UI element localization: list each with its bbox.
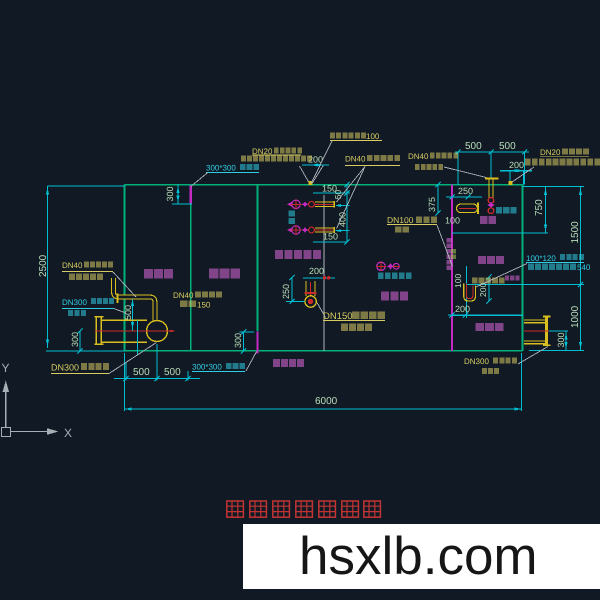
svg-text:50: 50 <box>333 190 343 200</box>
svg-text:DN300: DN300 <box>464 357 489 366</box>
svg-text:Y: Y <box>2 361 10 375</box>
svg-text:200: 200 <box>309 266 324 276</box>
svg-text:300: 300 <box>70 332 80 347</box>
svg-text:DN40: DN40 <box>62 261 83 270</box>
svg-text:DN100: DN100 <box>387 215 414 225</box>
svg-text:300: 300 <box>165 186 175 201</box>
svg-text:500: 500 <box>499 141 516 152</box>
svg-text:100: 100 <box>453 274 463 288</box>
svg-text:DN40: DN40 <box>173 291 194 300</box>
svg-text:500: 500 <box>164 367 181 378</box>
svg-text:150: 150 <box>197 301 211 310</box>
svg-text:DN40: DN40 <box>408 152 429 161</box>
svg-text:540: 540 <box>577 263 591 272</box>
svg-text:6000: 6000 <box>315 396 338 407</box>
svg-text:300: 300 <box>556 332 566 347</box>
svg-text:DN300: DN300 <box>51 363 79 373</box>
svg-text:500: 500 <box>133 367 150 378</box>
svg-text:300*300: 300*300 <box>192 363 222 372</box>
svg-text:100*120: 100*120 <box>526 254 556 263</box>
svg-text:100: 100 <box>366 132 380 141</box>
svg-text:200: 200 <box>478 283 488 297</box>
svg-text:300*300: 300*300 <box>206 164 236 173</box>
svg-text:500: 500 <box>465 141 482 152</box>
svg-text:375: 375 <box>427 197 437 212</box>
svg-text:750: 750 <box>534 199 545 216</box>
svg-text:2500: 2500 <box>38 254 49 277</box>
svg-text:300: 300 <box>233 333 243 348</box>
svg-text:1000: 1000 <box>570 305 581 328</box>
svg-text:250: 250 <box>281 284 291 299</box>
svg-text:X: X <box>64 426 72 440</box>
svg-text:DN40: DN40 <box>345 155 366 164</box>
svg-text:400: 400 <box>338 212 348 227</box>
svg-text:150: 150 <box>323 232 338 242</box>
svg-text:DN300: DN300 <box>62 298 87 307</box>
svg-text:200: 200 <box>509 160 524 170</box>
svg-text:DN20: DN20 <box>540 148 561 157</box>
svg-text:100: 100 <box>445 216 460 226</box>
svg-text:200: 200 <box>455 304 470 314</box>
svg-text:250: 250 <box>458 186 473 196</box>
svg-text:1500: 1500 <box>570 221 581 244</box>
